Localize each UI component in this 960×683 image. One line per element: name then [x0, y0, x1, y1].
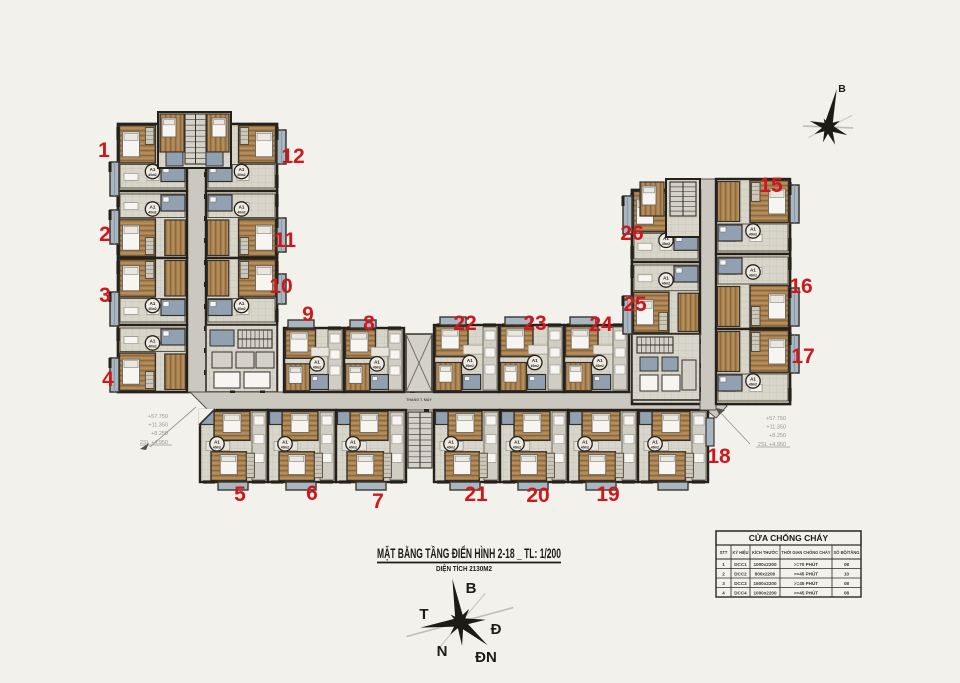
- svg-text:7: 7: [372, 490, 384, 513]
- svg-text:18: 18: [707, 445, 731, 468]
- svg-text:40m2: 40m2: [513, 445, 521, 449]
- svg-text:22: 22: [453, 312, 476, 335]
- svg-text:26: 26: [620, 222, 643, 245]
- svg-text:40m2: 40m2: [281, 445, 289, 449]
- svg-text:8: 8: [363, 312, 375, 335]
- svg-text:A1: A1: [239, 205, 245, 210]
- svg-text:>=45 PHÚT: >=45 PHÚT: [794, 580, 818, 586]
- svg-text:08: 08: [844, 562, 850, 567]
- svg-text:A1: A1: [214, 439, 220, 444]
- svg-text:40m2: 40m2: [148, 211, 156, 215]
- svg-text:20: 20: [526, 484, 549, 507]
- svg-text:9: 9: [302, 303, 314, 326]
- svg-text:A1: A1: [750, 268, 756, 273]
- svg-text:A1: A1: [239, 167, 245, 172]
- svg-text:A1: A1: [750, 377, 756, 382]
- svg-text:16: 16: [789, 275, 812, 298]
- svg-text:40m2: 40m2: [349, 445, 357, 449]
- svg-text:A1: A1: [750, 227, 756, 232]
- svg-text:40m2: 40m2: [373, 365, 381, 369]
- svg-text:A1: A1: [150, 339, 156, 344]
- svg-text:>=70 PHÚT: >=70 PHÚT: [794, 561, 818, 567]
- svg-text:T: T: [419, 606, 428, 623]
- svg-text:>=45 PHÚT: >=45 PHÚT: [794, 590, 818, 596]
- svg-text:10: 10: [844, 572, 850, 577]
- svg-text:23: 23: [523, 312, 546, 335]
- svg-text:2: 2: [722, 572, 725, 577]
- svg-text:A1: A1: [282, 439, 288, 444]
- svg-text:+57.750: +57.750: [148, 414, 168, 420]
- svg-text:DCC4: DCC4: [734, 591, 747, 596]
- svg-text:40m2: 40m2: [148, 173, 156, 177]
- svg-text:40m2: 40m2: [581, 445, 589, 449]
- svg-text:40m2: 40m2: [237, 307, 245, 311]
- svg-text:40m2: 40m2: [447, 445, 455, 449]
- svg-text:800x2200: 800x2200: [755, 572, 776, 577]
- svg-text:A1: A1: [582, 439, 588, 444]
- svg-text:DCC3: DCC3: [734, 581, 747, 586]
- svg-text:25: 25: [623, 293, 647, 316]
- svg-text:12: 12: [281, 145, 304, 168]
- svg-text:B: B: [466, 580, 477, 597]
- svg-text:+8.250: +8.250: [769, 433, 786, 439]
- svg-text:40m2: 40m2: [749, 274, 757, 278]
- svg-text:24: 24: [589, 313, 613, 336]
- svg-text:DCC1: DCC1: [734, 562, 747, 567]
- svg-text:A1: A1: [467, 358, 473, 363]
- svg-text:SỐ BỘ/TẦNG: SỐ BỘ/TẦNG: [834, 550, 861, 555]
- svg-text:>=45 PHÚT: >=45 PHÚT: [794, 571, 818, 577]
- svg-text:40m2: 40m2: [651, 445, 659, 449]
- svg-text:40m2: 40m2: [313, 365, 321, 369]
- svg-text:21: 21: [464, 483, 488, 506]
- svg-text:1: 1: [98, 139, 110, 162]
- svg-text:40m2: 40m2: [596, 364, 604, 368]
- svg-text:CỬA CHỐNG CHÁY: CỬA CHỐNG CHÁY: [749, 532, 829, 543]
- svg-text:40m2: 40m2: [531, 364, 539, 368]
- svg-text:1000x2200: 1000x2200: [754, 562, 777, 567]
- svg-text:40m2: 40m2: [148, 307, 156, 311]
- svg-text:+11.350: +11.350: [148, 423, 168, 429]
- svg-text:40m2: 40m2: [466, 364, 474, 368]
- svg-text:17: 17: [791, 345, 814, 368]
- svg-text:40m2: 40m2: [749, 233, 757, 237]
- svg-text:10: 10: [269, 275, 292, 298]
- svg-text:THỜI GIAN CHỐNG CHÁY: THỜI GIAN CHỐNG CHÁY: [782, 550, 831, 555]
- svg-text:ĐN: ĐN: [475, 649, 497, 666]
- svg-text:A1: A1: [150, 205, 156, 210]
- svg-text:A1: A1: [448, 439, 454, 444]
- svg-text:11: 11: [274, 229, 297, 252]
- svg-text:KÝ HIỆU: KÝ HIỆU: [733, 550, 749, 555]
- svg-text:6: 6: [306, 482, 318, 505]
- svg-text:4: 4: [722, 591, 725, 596]
- svg-text:+57.750: +57.750: [766, 416, 786, 422]
- svg-text:A1: A1: [663, 276, 669, 281]
- svg-text:A1: A1: [350, 439, 356, 444]
- svg-text:2: 2: [99, 223, 111, 246]
- svg-text:A1: A1: [652, 439, 658, 444]
- svg-text:DCC2: DCC2: [734, 572, 747, 577]
- svg-text:Đ: Đ: [491, 621, 502, 638]
- svg-text:1: 1: [722, 562, 725, 567]
- svg-text:THANG T. MÁY: THANG T. MÁY: [406, 397, 432, 402]
- svg-text:40m2: 40m2: [237, 211, 245, 215]
- svg-text:+8.250: +8.250: [151, 431, 168, 437]
- svg-text:40m2: 40m2: [237, 173, 245, 177]
- svg-text:+11.350: +11.350: [766, 425, 786, 431]
- svg-text:40m2: 40m2: [749, 383, 757, 387]
- svg-text:4: 4: [102, 368, 114, 391]
- svg-text:1500x2200: 1500x2200: [754, 581, 777, 586]
- svg-text:40m2: 40m2: [662, 242, 670, 246]
- svg-text:40m2: 40m2: [213, 445, 221, 449]
- svg-text:STT: STT: [720, 550, 728, 555]
- svg-text:19: 19: [596, 483, 619, 506]
- svg-text:DIỆN TÍCH 2130M2: DIỆN TÍCH 2130M2: [436, 564, 492, 573]
- svg-text:A1: A1: [150, 167, 156, 172]
- svg-text:KÍCH THƯỚC: KÍCH THƯỚC: [752, 550, 779, 555]
- svg-text:15: 15: [759, 174, 783, 197]
- svg-text:B: B: [838, 83, 846, 95]
- svg-text:A1: A1: [374, 359, 380, 364]
- svg-text:3: 3: [722, 581, 725, 586]
- svg-text:A1: A1: [314, 359, 320, 364]
- svg-text:08: 08: [844, 591, 850, 596]
- svg-text:3: 3: [99, 284, 111, 307]
- svg-text:08: 08: [844, 581, 850, 586]
- svg-text:A1: A1: [239, 301, 245, 306]
- svg-text:MẶT BẰNG TẦNG ĐIỂN HÌNH 2-18 _: MẶT BẰNG TẦNG ĐIỂN HÌNH 2-18 _ TL: 1/200: [377, 546, 561, 561]
- svg-text:A1: A1: [514, 439, 520, 444]
- svg-text:A1: A1: [150, 301, 156, 306]
- svg-text:1000x2200: 1000x2200: [754, 591, 777, 596]
- svg-text:A1: A1: [532, 358, 538, 363]
- svg-text:N: N: [437, 643, 448, 660]
- svg-text:A1: A1: [597, 358, 603, 363]
- svg-text:5: 5: [234, 483, 246, 506]
- svg-text:40m2: 40m2: [148, 345, 156, 349]
- svg-text:40m2: 40m2: [662, 282, 670, 286]
